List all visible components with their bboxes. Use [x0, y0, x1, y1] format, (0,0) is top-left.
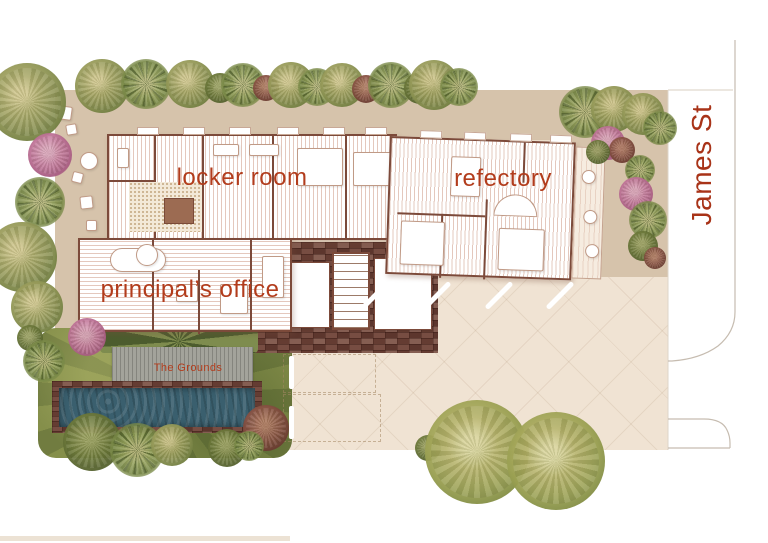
interior-wall — [483, 199, 488, 279]
refectory-wing — [385, 136, 606, 283]
parking-bay — [283, 394, 381, 442]
lane-marking — [289, 406, 294, 439]
room-label-locker-room: locker room — [177, 164, 308, 192]
table — [164, 198, 194, 224]
tree-pink — [68, 318, 106, 356]
bed — [497, 228, 544, 272]
deck-label-grounds: The Grounds — [154, 362, 223, 374]
fixture — [117, 148, 129, 168]
parking-bay — [283, 354, 376, 393]
lane-marking — [289, 356, 294, 389]
tree-olive — [151, 424, 193, 466]
facade-column — [137, 127, 159, 135]
stairs — [332, 252, 370, 330]
fan-seat — [493, 194, 538, 218]
terrace-chair — [79, 195, 93, 209]
terrace-chair — [65, 123, 78, 136]
interior-wall — [345, 136, 347, 238]
facade-column — [323, 127, 345, 135]
tree-palm — [23, 340, 65, 382]
room-label-principals-office: principal’s office — [101, 276, 280, 304]
facade-column — [550, 135, 572, 144]
bed — [400, 220, 446, 266]
tree-olive — [11, 281, 63, 333]
terrace-table — [80, 152, 98, 170]
facade-column — [420, 130, 442, 139]
facade-column — [183, 127, 205, 135]
tree-palm — [234, 431, 264, 461]
veranda-chair — [585, 244, 599, 258]
cabinet — [213, 144, 239, 156]
room-label-refectory: refectory — [454, 165, 552, 193]
veranda-chair — [583, 210, 597, 224]
facade-column — [365, 127, 387, 135]
street-label-james-st: James St — [686, 90, 720, 240]
cabinet — [249, 144, 279, 156]
tree-palm — [440, 68, 478, 106]
refectory-building — [385, 136, 576, 280]
terrace-chair — [86, 220, 97, 231]
facade-column — [229, 127, 251, 135]
tree-dark — [586, 140, 610, 164]
south-boundary-strip — [0, 536, 290, 541]
veranda — [571, 146, 606, 279]
tree-olive2 — [507, 412, 605, 510]
tree-pink — [28, 133, 72, 177]
facade-column — [464, 132, 486, 141]
tree-palm — [121, 59, 171, 109]
bed — [353, 152, 393, 186]
tree-maroon — [644, 247, 666, 269]
site-plan: locker room refectory principal’s office… — [0, 0, 768, 543]
round-table — [136, 244, 158, 266]
tree-palm — [15, 177, 65, 227]
facade-column — [277, 127, 299, 135]
tree-palm — [643, 111, 677, 145]
veranda-chair — [581, 170, 595, 184]
facade-column — [510, 133, 532, 142]
